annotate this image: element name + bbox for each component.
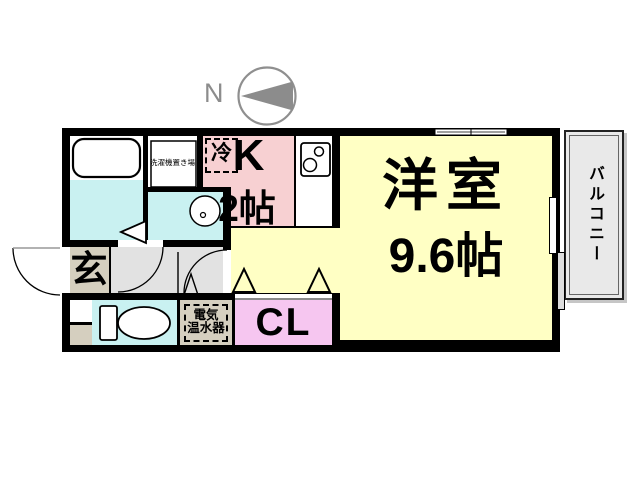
entrance-step-lower — [70, 325, 92, 345]
kitchen-counter — [296, 136, 332, 226]
bathroom-floor — [70, 180, 143, 240]
sliding-door-pane — [549, 197, 557, 254]
north-arrow-icon — [241, 82, 293, 111]
sliding-door-pane — [557, 252, 565, 310]
laundry-area — [148, 136, 197, 187]
room-door-opening — [223, 250, 231, 293]
water-heater-box — [184, 304, 228, 342]
balcony: バルコニー — [564, 130, 624, 300]
kitchen-area-lower — [231, 187, 294, 226]
washbasin-area — [148, 192, 223, 240]
entrance-door-arc — [13, 248, 60, 295]
toilet-room — [92, 300, 177, 345]
compass-circle — [239, 68, 296, 125]
compass-north-label: N — [204, 80, 224, 107]
balcony-inner-border — [569, 135, 619, 295]
closet-room — [235, 300, 332, 345]
closet-door-track — [235, 293, 332, 300]
bathroom-tub-area — [70, 136, 143, 180]
floorplan-canvas: バルコニー — [0, 0, 640, 480]
entrance-step-upper — [70, 300, 92, 322]
entrance-area — [70, 247, 109, 293]
refrigerator-box — [205, 138, 238, 173]
hallway — [111, 247, 223, 293]
western-room-extension — [231, 228, 340, 293]
western-room — [340, 136, 552, 340]
entrance-door-opening — [62, 247, 70, 293]
